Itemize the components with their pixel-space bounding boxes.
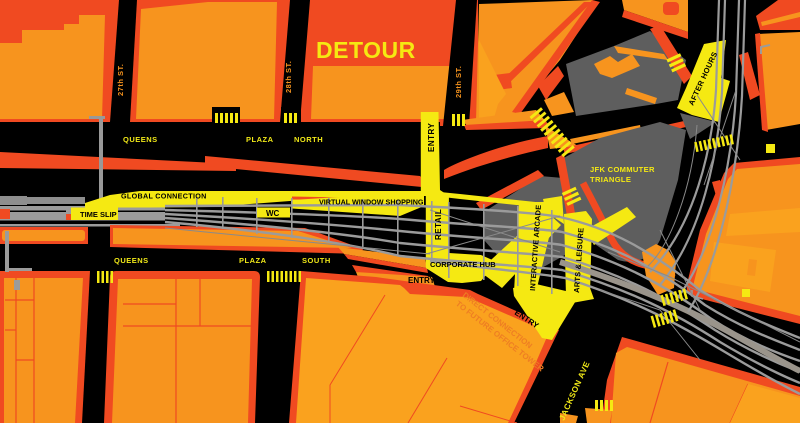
- svg-text:JFK COMMUTER: JFK COMMUTER: [590, 165, 655, 174]
- svg-text:TIME SLIP: TIME SLIP: [80, 210, 117, 219]
- svg-text:NORTH: NORTH: [294, 135, 323, 144]
- svg-text:QUEENS: QUEENS: [123, 135, 158, 144]
- svg-text:RETAIL: RETAIL: [434, 209, 443, 240]
- svg-text:PLAZA: PLAZA: [246, 135, 274, 144]
- svg-text:29th ST.: 29th ST.: [454, 66, 463, 98]
- svg-text:SOUTH: SOUTH: [302, 256, 331, 265]
- svg-text:GLOBAL CONNECTION: GLOBAL CONNECTION: [121, 192, 207, 201]
- svg-text:ENTRY: ENTRY: [408, 276, 435, 285]
- svg-text:27th ST.: 27th ST.: [116, 64, 125, 96]
- svg-text:TRIANGLE: TRIANGLE: [590, 175, 631, 184]
- svg-text:PLAZA: PLAZA: [239, 256, 267, 265]
- svg-text:28th ST.: 28th ST.: [284, 61, 293, 93]
- svg-text:WC: WC: [266, 209, 280, 218]
- svg-text:DETOUR: DETOUR: [316, 37, 416, 63]
- svg-text:ENTRY: ENTRY: [427, 123, 436, 152]
- svg-text:CORPORATE HUB: CORPORATE HUB: [430, 260, 496, 269]
- svg-text:VIRTUAL WINDOW SHOPPING: VIRTUAL WINDOW SHOPPING: [319, 198, 424, 207]
- svg-text:QUEENS: QUEENS: [114, 256, 149, 265]
